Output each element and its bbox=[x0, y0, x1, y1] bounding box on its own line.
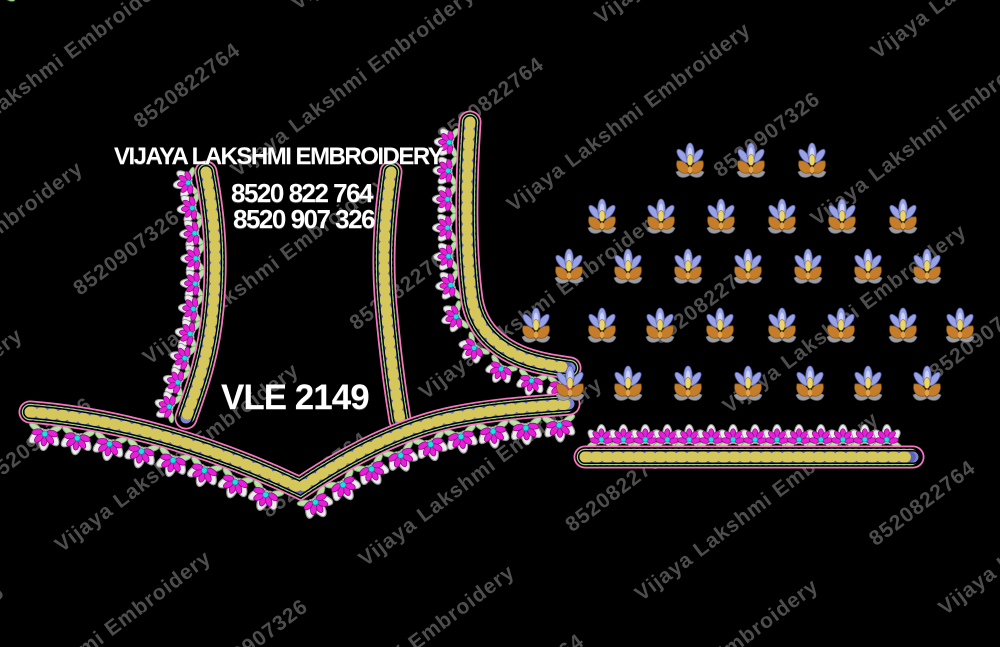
flower-motif bbox=[945, 308, 975, 342]
flower-motif bbox=[767, 308, 797, 342]
flower-motif bbox=[587, 308, 617, 342]
border-strip bbox=[585, 425, 913, 458]
flower-motif bbox=[767, 199, 797, 233]
flower-motif bbox=[554, 249, 584, 283]
flower-motif bbox=[795, 366, 825, 400]
flower-motif bbox=[675, 143, 705, 177]
flower-motif bbox=[706, 199, 736, 233]
flower-motif bbox=[673, 366, 703, 400]
phone-number-2: 8520 907 326 bbox=[233, 204, 374, 235]
band-stroke bbox=[467, 122, 570, 368]
flower-motif bbox=[912, 366, 942, 400]
neckline-design bbox=[0, 0, 578, 526]
flower-motif bbox=[521, 308, 551, 342]
flower-motif bbox=[733, 366, 763, 400]
embroidery-design-sheet: 8520907326Vijaya Lakshmi Embroidery85208… bbox=[0, 0, 1000, 647]
flower-motif bbox=[797, 143, 827, 177]
flower-motif bbox=[646, 199, 676, 233]
flower-motif bbox=[705, 308, 735, 342]
flower-motif bbox=[793, 249, 823, 283]
flower-motif bbox=[853, 366, 883, 400]
brand-title: VIJAYA LAKSHMI EMBROIDERY bbox=[114, 143, 442, 171]
flower-motif bbox=[912, 249, 942, 283]
flower-motif bbox=[826, 308, 856, 342]
neckline-band-left bbox=[150, 166, 215, 425]
border-flower bbox=[433, 240, 460, 273]
flower-motif bbox=[888, 199, 918, 233]
flower-motif bbox=[587, 199, 617, 233]
border-flower bbox=[432, 183, 457, 215]
border-flower bbox=[432, 212, 458, 244]
flower-motif bbox=[827, 199, 857, 233]
border-flower bbox=[0, 0, 16, 3]
neckline-band-curve bbox=[432, 122, 578, 404]
flower-motif bbox=[613, 366, 643, 400]
design-code: VLE 2149 bbox=[221, 378, 369, 418]
flower-motif bbox=[736, 143, 766, 177]
neckline-band-bottom bbox=[26, 404, 578, 526]
design-graphics bbox=[0, 0, 1000, 647]
flower-motif bbox=[733, 249, 763, 283]
flower-motif bbox=[613, 249, 643, 283]
flower-motif bbox=[888, 308, 918, 342]
flower-motif bbox=[853, 249, 883, 283]
motif-field bbox=[521, 143, 975, 400]
flower-motif bbox=[673, 249, 703, 283]
flower-motif bbox=[645, 308, 675, 342]
